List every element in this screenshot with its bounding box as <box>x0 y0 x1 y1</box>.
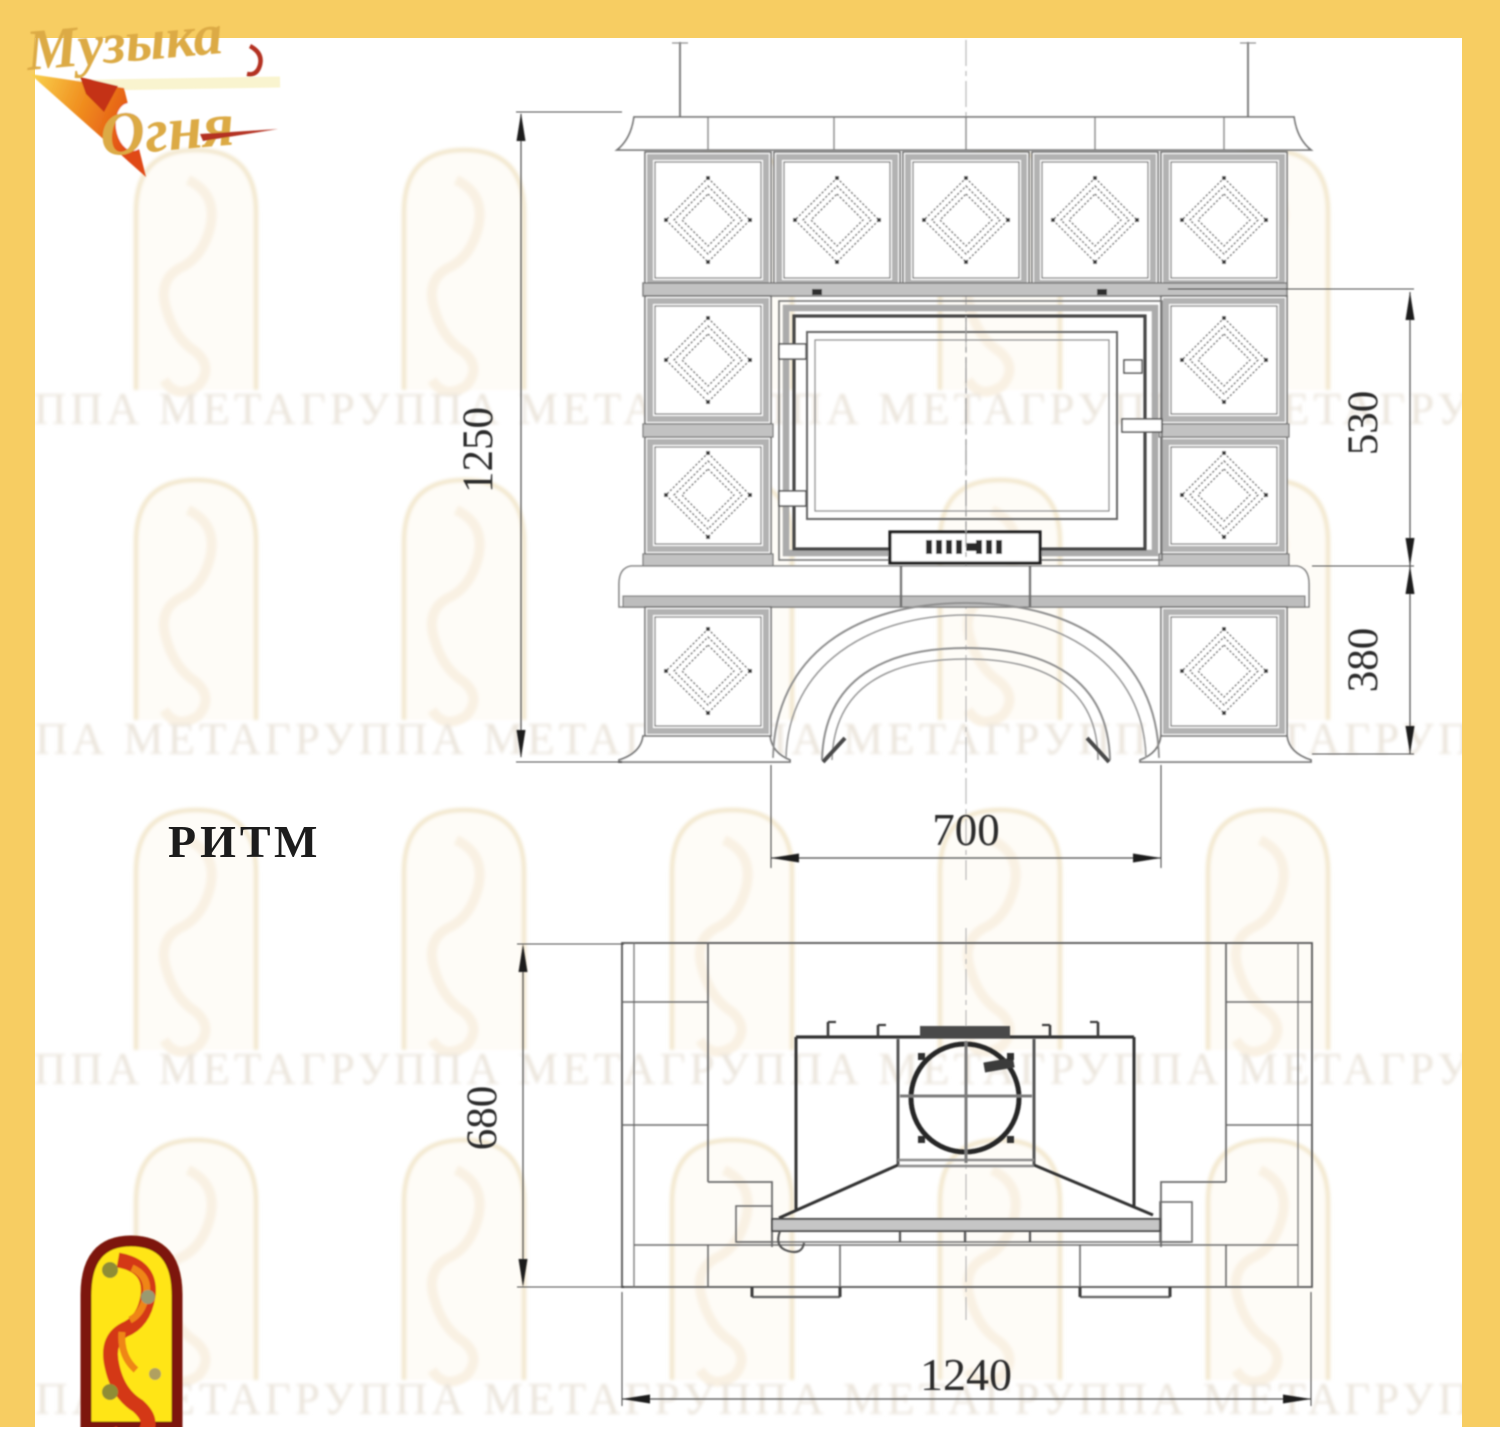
svg-text:РИТМ: РИТМ <box>168 816 321 867</box>
svg-text:380: 380 <box>1340 628 1387 693</box>
svg-text:ГРУППА МЕТАГРУППА МЕТАГРУППА М: ГРУППА МЕТАГРУППА МЕТАГРУППА МЕТАГРУППА … <box>0 1044 1500 1094</box>
svg-text:Огня: Огня <box>97 91 236 170</box>
svg-text:530: 530 <box>1340 391 1387 456</box>
svg-text:700: 700 <box>932 805 1000 855</box>
svg-text:1250: 1250 <box>455 407 502 493</box>
svg-text:680: 680 <box>459 1086 506 1151</box>
svg-text:1240: 1240 <box>920 1349 1012 1400</box>
